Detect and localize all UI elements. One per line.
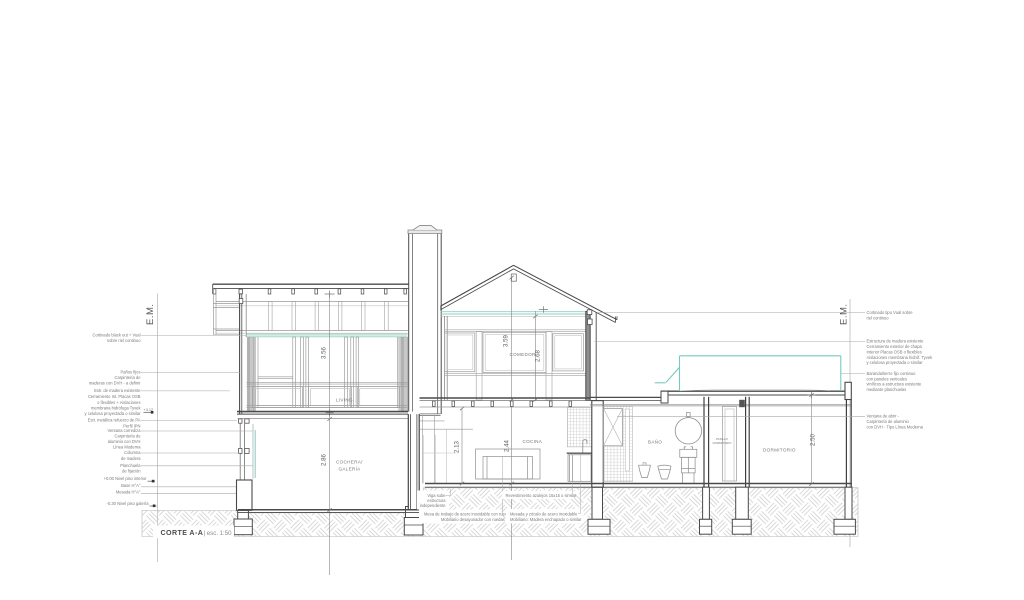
svg-text:| esc. 1:50: | esc. 1:50: [204, 530, 233, 537]
svg-text:3.56: 3.56: [321, 347, 328, 359]
svg-text:LIVING: LIVING: [336, 398, 353, 403]
svg-text:Carpintería de: Carpintería de: [115, 434, 142, 439]
svg-text:Carpintería de: Carpintería de: [115, 375, 142, 380]
svg-text:E.M.: E.M.: [839, 303, 850, 325]
svg-text:Cortinado black out + Vual: Cortinado black out + Vual: [93, 333, 141, 338]
svg-text:Ventana de abrir -: Ventana de abrir -: [867, 414, 900, 419]
svg-text:independiente: independiente: [420, 503, 446, 508]
svg-text:Ventana corrediza: Ventana corrediza: [108, 428, 142, 433]
svg-text:Aislaciones membrana hidróf. T: Aislaciones membrana hidróf. Tyvek: [867, 355, 934, 360]
svg-text:BAÑO: BAÑO: [648, 439, 662, 445]
svg-text:2.44: 2.44: [504, 440, 511, 452]
svg-text:con paneles verticales: con paneles verticales: [867, 376, 908, 381]
svg-text:DORMITORIO: DORMITORIO: [713, 441, 732, 445]
svg-text:y celulosa proyectada o simila: y celulosa proyectada o similar: [85, 411, 142, 416]
svg-text:Cerramiento Int. Placas OSB: Cerramiento Int. Placas OSB: [88, 394, 141, 399]
svg-text:Baranda/tierro fijo continuo: Baranda/tierro fijo continuo: [867, 371, 917, 376]
svg-text:y celulosa proyectada o simila: y celulosa proyectada o similar: [867, 360, 924, 365]
svg-text:de fijación: de fijación: [122, 468, 141, 473]
svg-text:2.86: 2.86: [321, 454, 328, 466]
svg-text:-0.30 Nivel piso galería: -0.30 Nivel piso galería: [107, 501, 150, 506]
svg-text:Mobiliario: Madera enchapado o: Mobiliario: Madera enchapado o similar: [510, 517, 582, 522]
svg-text:Planchuela: Planchuela: [120, 463, 141, 468]
svg-text:GALERÍA: GALERÍA: [339, 466, 362, 472]
svg-text:Columna: Columna: [124, 450, 141, 455]
svg-text:Mesada H°A°: Mesada H°A°: [116, 490, 141, 495]
svg-text:3.59: 3.59: [503, 335, 510, 347]
svg-text:COCINA: COCINA: [523, 439, 543, 444]
svg-text:E.M.: E.M.: [145, 303, 156, 325]
svg-text:Carpintería de aluminio: Carpintería de aluminio: [867, 419, 910, 424]
svg-text:Mesada y zócalo de acero inoxi: Mesada y zócalo de acero inoxidable: [510, 511, 578, 516]
svg-text:DORMITORIO: DORMITORIO: [763, 448, 796, 453]
svg-text:2.68: 2.68: [534, 350, 541, 362]
svg-text:2.50: 2.50: [810, 434, 817, 446]
svg-text:vinílicos a estructura existen: vinílicos a estructura existente: [867, 382, 923, 387]
svg-text:CORTE A-A: CORTE A-A: [161, 529, 204, 537]
svg-text:maderas con DVH - a definir: maderas con DVH - a definir: [89, 381, 141, 386]
svg-text:+0.00 Nivel piso interior: +0.00 Nivel piso interior: [104, 476, 148, 481]
svg-text:membrana hidrófuga Tyvek: membrana hidrófuga Tyvek: [91, 406, 141, 411]
svg-text:COMEDOR: COMEDOR: [510, 352, 536, 357]
svg-text:Interior Placas OSB o flexible: Interior Placas OSB o flexibles: [867, 349, 922, 354]
svg-text:aluminio con DVH: aluminio con DVH: [108, 439, 141, 444]
svg-text:de madera: de madera: [121, 456, 141, 461]
svg-text:sobre riel continuo: sobre riel continuo: [107, 338, 141, 343]
svg-text:riel continuo: riel continuo: [867, 315, 890, 320]
svg-text:mediante planchuelas: mediante planchuelas: [867, 387, 907, 392]
svg-text:con DVH - Tipo Línea Moderna: con DVH - Tipo Línea Moderna: [867, 424, 924, 429]
svg-text:Línea Moderna: Línea Moderna: [113, 444, 141, 449]
svg-text:Mobiliario desayunador con rue: Mobiliario desayunador con ruedas: [441, 517, 505, 522]
svg-text:Mesa de trabajo de acero inoxi: Mesa de trabajo de acero inoxidable con …: [424, 511, 511, 516]
svg-text:o flexibles + Aislaciones: o flexibles + Aislaciones: [97, 400, 140, 405]
svg-text:COCHERA/: COCHERA/: [336, 460, 363, 465]
svg-text:Cerramiento exterior de chapa: Cerramiento exterior de chapa: [867, 344, 923, 349]
svg-text:Estr. de madera existente: Estr. de madera existente: [94, 388, 141, 393]
svg-text:Estr. metálica refuerzo de PA: Estr. metálica refuerzo de PA: [88, 418, 141, 423]
svg-text:2.13: 2.13: [454, 441, 461, 453]
svg-text:Paños fijos: Paños fijos: [120, 370, 140, 375]
svg-text:Revestimiento azulejos 15x15 o: Revestimiento azulejos 15x15 o similar: [506, 493, 577, 498]
svg-text:Base H°A°: Base H°A°: [121, 483, 141, 488]
svg-text:Cortinado tipo Vual sobre: Cortinado tipo Vual sobre: [867, 310, 914, 315]
svg-text:Estructura de madera existente: Estructura de madera existente: [867, 339, 925, 344]
